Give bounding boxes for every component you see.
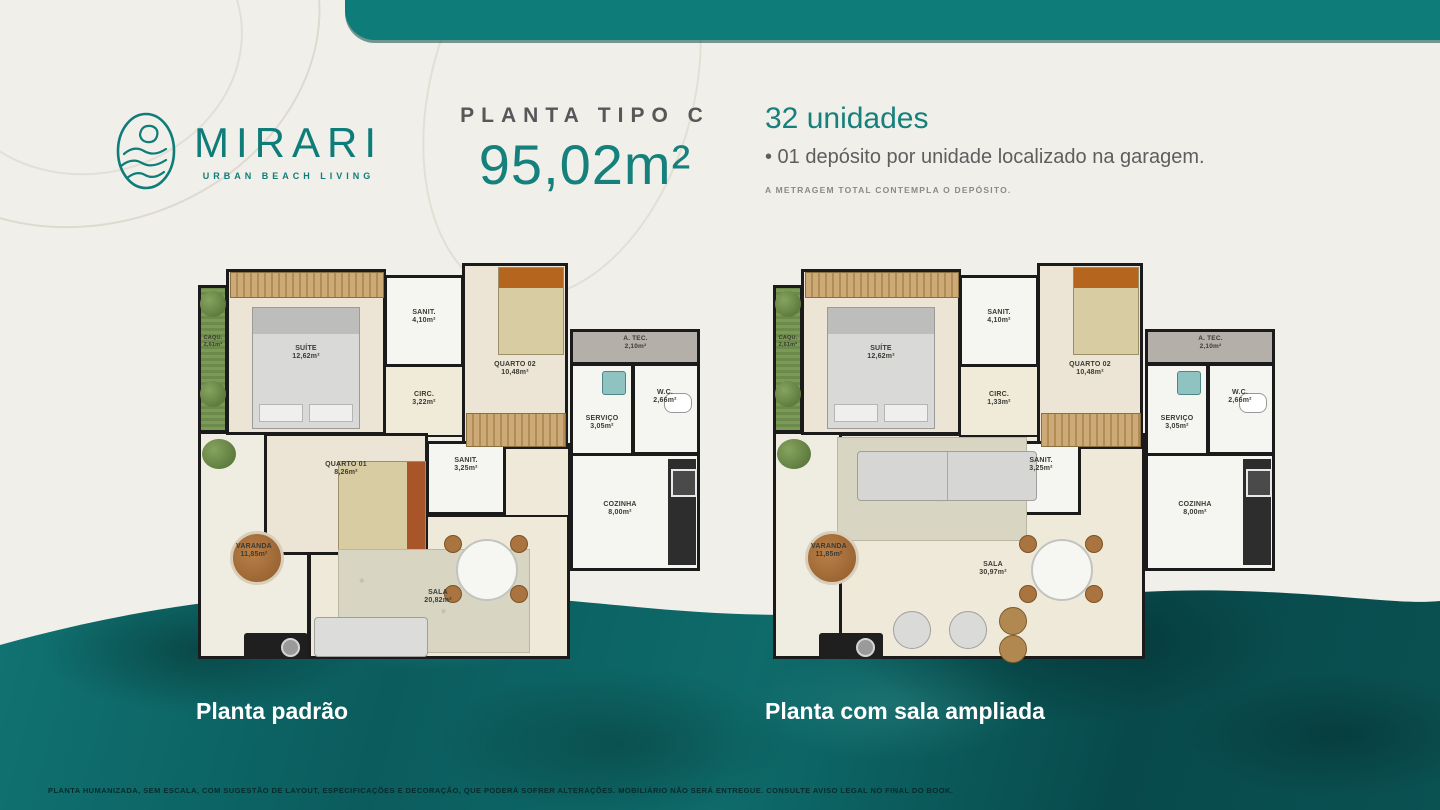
units-count: 32 unidades	[765, 102, 1325, 136]
plant	[200, 381, 226, 407]
dining-chair	[444, 535, 462, 553]
floorplan-extended-living: CAQU.2,61m² SUÍTE12,62m² SANIT.4,10m² CI…	[773, 263, 1278, 663]
brand-logo: MIRARI URBAN BEACH LIVING	[114, 110, 383, 192]
washing-machine	[602, 371, 626, 395]
dining-table	[1031, 539, 1093, 601]
wardrobe	[805, 272, 959, 298]
wardrobe	[230, 272, 384, 298]
dining-chair	[1085, 585, 1103, 603]
top-teal-band	[345, 0, 1440, 40]
washing-machine	[1177, 371, 1201, 395]
floorplan-standard: CAQU.2,61m² SUÍTE12,62m² SANIT.4,10m² CI…	[198, 263, 703, 663]
dining-chair	[510, 535, 528, 553]
wardrobe	[1041, 413, 1141, 447]
pouf	[999, 607, 1027, 635]
brand-tagline: URBAN BEACH LIVING	[194, 171, 383, 181]
dining-chair	[510, 585, 528, 603]
room-sanit-social	[426, 441, 506, 515]
single-bed	[1073, 267, 1139, 355]
dining-chair	[1019, 535, 1037, 553]
gourmet-bench	[819, 633, 883, 659]
double-bed	[252, 307, 360, 429]
pouf	[999, 635, 1027, 663]
dining-chair	[1019, 585, 1037, 603]
plant	[775, 291, 801, 317]
plan-total-area: 95,02m²	[440, 132, 730, 197]
wave-oval-logo-icon	[114, 110, 178, 192]
armchair	[893, 611, 931, 649]
brochure-page: MIRARI URBAN BEACH LIVING PLANTA TIPO C …	[0, 0, 1440, 810]
wardrobe	[466, 413, 566, 447]
plan-title-block: PLANTA TIPO C 95,02m²	[440, 104, 730, 197]
stove	[1246, 469, 1272, 497]
plant	[775, 381, 801, 407]
armchair	[949, 611, 987, 649]
plant	[202, 439, 236, 469]
double-bed	[827, 307, 935, 429]
brand-name: MIRARI	[194, 122, 383, 164]
dining-chair	[1085, 535, 1103, 553]
single-bed	[498, 267, 564, 355]
caption-extended-plan: Planta com sala ampliada	[765, 698, 1045, 725]
units-info-block: 32 unidades • 01 depósito por unidade lo…	[765, 102, 1325, 195]
plant	[200, 291, 226, 317]
caption-standard-plan: Planta padrão	[196, 698, 348, 725]
units-note: A METRAGEM TOTAL CONTEMPLA O DEPÓSITO.	[765, 185, 1325, 195]
stove	[671, 469, 697, 497]
units-detail: • 01 depósito por unidade localizado na …	[765, 146, 1325, 169]
sofa	[314, 617, 428, 657]
plan-type-title: PLANTA TIPO C	[440, 104, 730, 128]
plant	[777, 439, 811, 469]
gourmet-bench	[244, 633, 308, 659]
legal-disclaimer: PLANTA HUMANIZADA, SEM ESCALA, COM SUGES…	[48, 786, 953, 795]
